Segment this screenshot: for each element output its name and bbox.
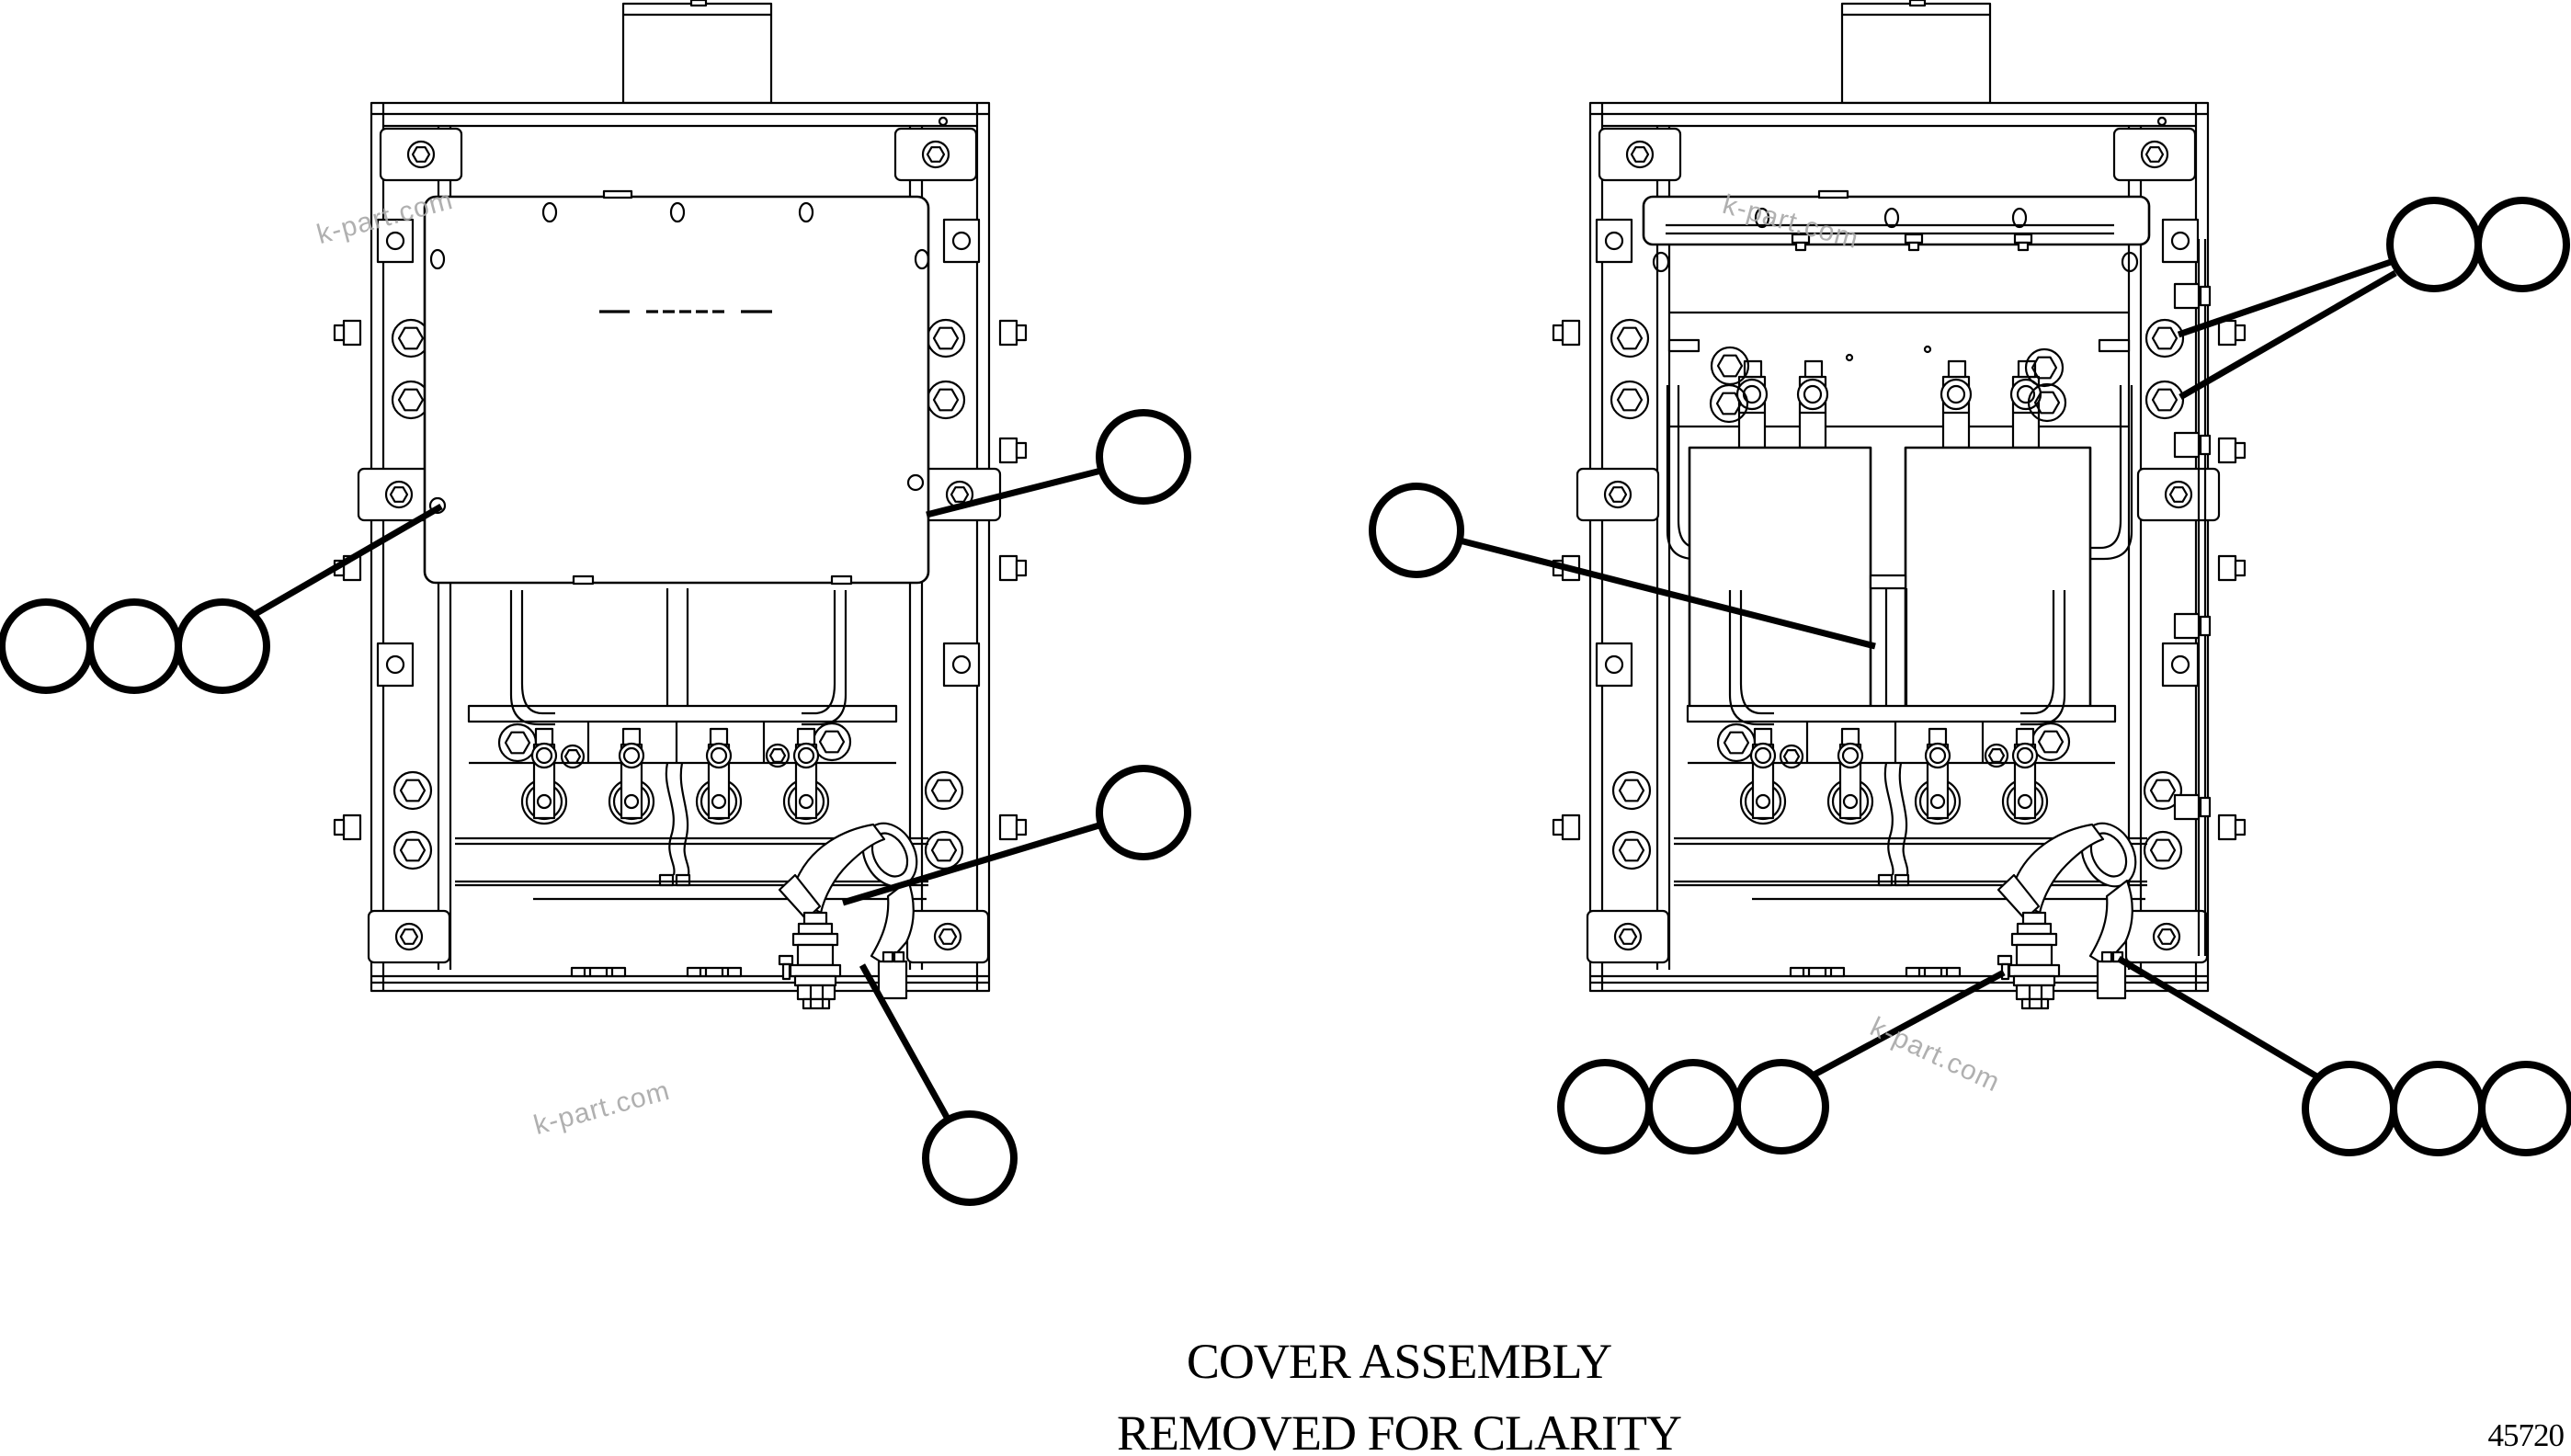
caption-line-1: COVER ASSEMBLY (1117, 1325, 1681, 1397)
callout-leader-right-bottom-right-group (2119, 959, 2318, 1077)
callout-balloon-left-side-group[interactable] (2, 602, 90, 690)
parts-diagram-canvas (0, 0, 2571, 1456)
diagram-page: COVER ASSEMBLY REMOVED FOR CLARITY 45720… (0, 0, 2571, 1456)
callout-balloon-left-lower-right[interactable] (1099, 768, 1188, 857)
callout-balloon-right-bottom-left-group[interactable] (1561, 1063, 1649, 1151)
callout-balloon-right-bottom-right-group[interactable] (2482, 1064, 2570, 1153)
callout-balloon-right-bottom-left-group[interactable] (1649, 1063, 1737, 1151)
callout-leader-right-top-pair (2180, 273, 2395, 397)
callout-balloon-right-center[interactable] (1372, 486, 1461, 574)
drawing-number: 45720 (2488, 1417, 2565, 1454)
callout-balloon-right-bottom-right-group[interactable] (2394, 1064, 2482, 1153)
callout-balloon-left-upper-right[interactable] (1099, 413, 1188, 501)
caption: COVER ASSEMBLY REMOVED FOR CLARITY (1117, 1325, 1681, 1456)
caption-line-2: REMOVED FOR CLARITY (1117, 1397, 1681, 1456)
callout-balloon-right-bottom-right-group[interactable] (2305, 1064, 2394, 1153)
assembly-right-frame (1553, 0, 2245, 991)
callout-balloon-left-side-group[interactable] (178, 602, 267, 690)
assembly-left-cover-plate (425, 191, 928, 584)
callout-balloon-left-bottom[interactable] (926, 1114, 1014, 1202)
callout-balloon-left-side-group[interactable] (90, 602, 178, 690)
callout-balloon-right-top-pair[interactable] (2390, 200, 2478, 289)
assembly-right (1553, 0, 2245, 1008)
callout-balloon-right-top-pair[interactable] (2478, 200, 2566, 289)
callout-balloon-right-bottom-left-group[interactable] (1737, 1063, 1826, 1151)
assembly-left (335, 0, 1026, 1008)
